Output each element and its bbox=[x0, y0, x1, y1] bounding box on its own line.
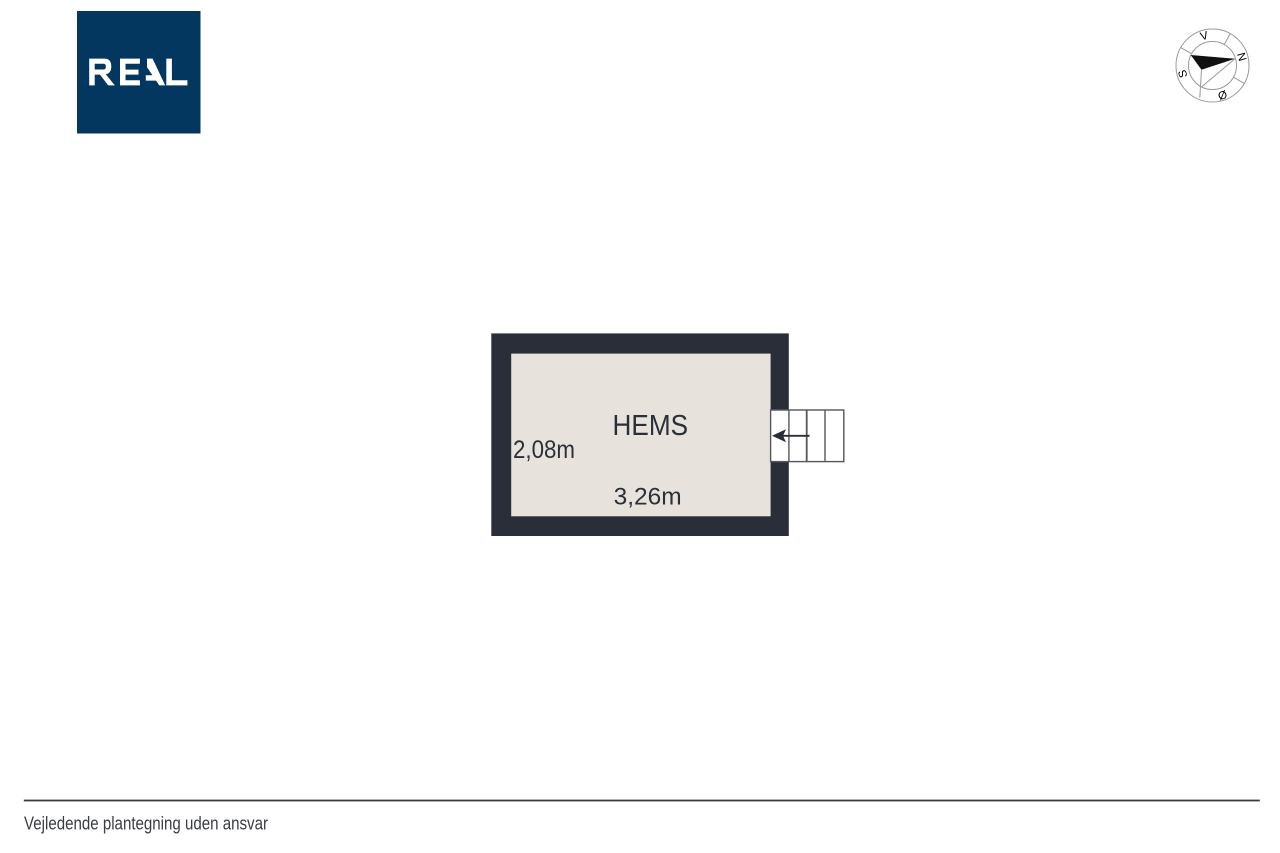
svg-text:S: S bbox=[1177, 68, 1191, 79]
svg-text:N: N bbox=[1234, 51, 1248, 62]
svg-text:V: V bbox=[1199, 30, 1210, 44]
svg-text:3,26m: 3,26m bbox=[614, 483, 682, 510]
svg-text:HEMS: HEMS bbox=[613, 410, 689, 442]
svg-text:Vejledende plantegning uden an: Vejledende plantegning uden ansvar bbox=[24, 814, 268, 834]
svg-text:2,08m: 2,08m bbox=[513, 436, 575, 464]
